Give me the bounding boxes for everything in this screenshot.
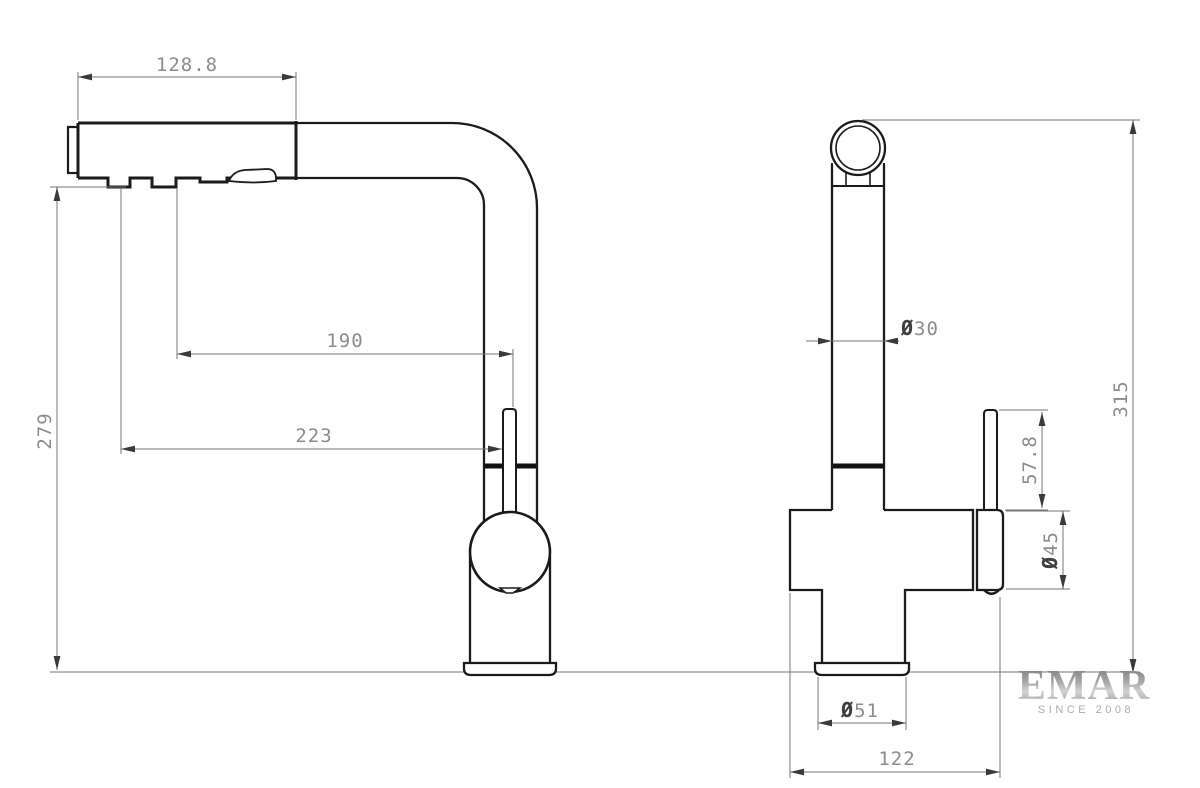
- dimension-label-reach-upper: 190: [326, 330, 363, 352]
- dimension-label-body-depth: 122: [878, 748, 915, 770]
- handle-lever-front: [984, 410, 997, 510]
- dimension-label-head-length: 128.8: [156, 54, 218, 76]
- base-flange-side: [464, 663, 556, 675]
- dimension-head-length: 128.8: [78, 54, 296, 120]
- dimension-label-front-height: 315: [1110, 380, 1132, 417]
- dimension-side-height: 279: [34, 187, 126, 670]
- brand-logo: EMAR SINCE 2008: [1018, 663, 1150, 716]
- spray-clip: [229, 169, 276, 183]
- handle-base-cylinder: [977, 510, 1003, 590]
- dimension-reach-lower: 223: [121, 188, 502, 454]
- cross-body: [790, 510, 973, 663]
- brand-logo-tagline: SINCE 2008: [1038, 704, 1134, 716]
- dimension-lever-height: 57.8: [999, 410, 1048, 510]
- dimension-label-handle-diameter: Ø45: [1038, 531, 1062, 570]
- dimension-label-lever-height: 57.8: [1019, 435, 1041, 485]
- spout-end-circle: [831, 121, 885, 175]
- brand-logo-wordmark: EMAR: [1018, 663, 1150, 709]
- dimension-label-base-diameter: Ø51: [840, 698, 879, 722]
- dimension-tube-diameter: Ø30: [806, 316, 939, 344]
- handle-lever-side: [503, 409, 516, 513]
- dimension-label-tube-diameter: Ø30: [900, 316, 939, 340]
- mixer-ball: [470, 512, 550, 592]
- dimension-label-side-height: 279: [34, 412, 56, 449]
- front-view-drawing: [790, 121, 1003, 675]
- riser-column: [832, 165, 884, 510]
- dimension-handle-diameter: Ø45: [1006, 511, 1070, 589]
- dimension-reach-upper: 190: [177, 188, 513, 407]
- spray-head: [68, 121, 296, 187]
- dimension-label-reach-lower: 223: [295, 425, 332, 447]
- faucet-drawing-canvas: 128.8 190 223 279 Ø30 315 57.8: [0, 0, 1200, 788]
- side-view-drawing: [68, 121, 556, 675]
- dimension-base-diameter: Ø51: [818, 677, 906, 730]
- technical-drawing-page: 128.8 190 223 279 Ø30 315 57.8: [0, 0, 1200, 788]
- base-flange-front: [815, 663, 909, 675]
